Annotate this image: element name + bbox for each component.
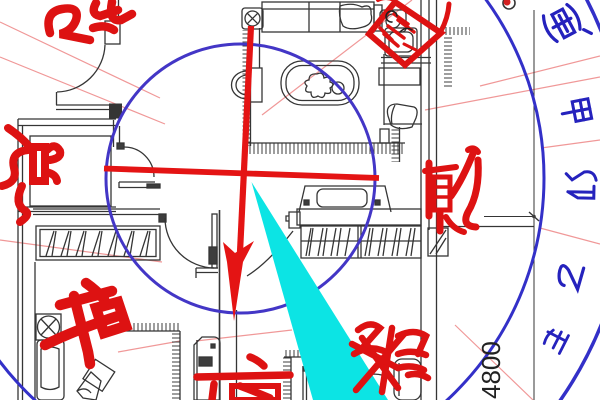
svg-text:4800: 4800 [476, 341, 506, 399]
